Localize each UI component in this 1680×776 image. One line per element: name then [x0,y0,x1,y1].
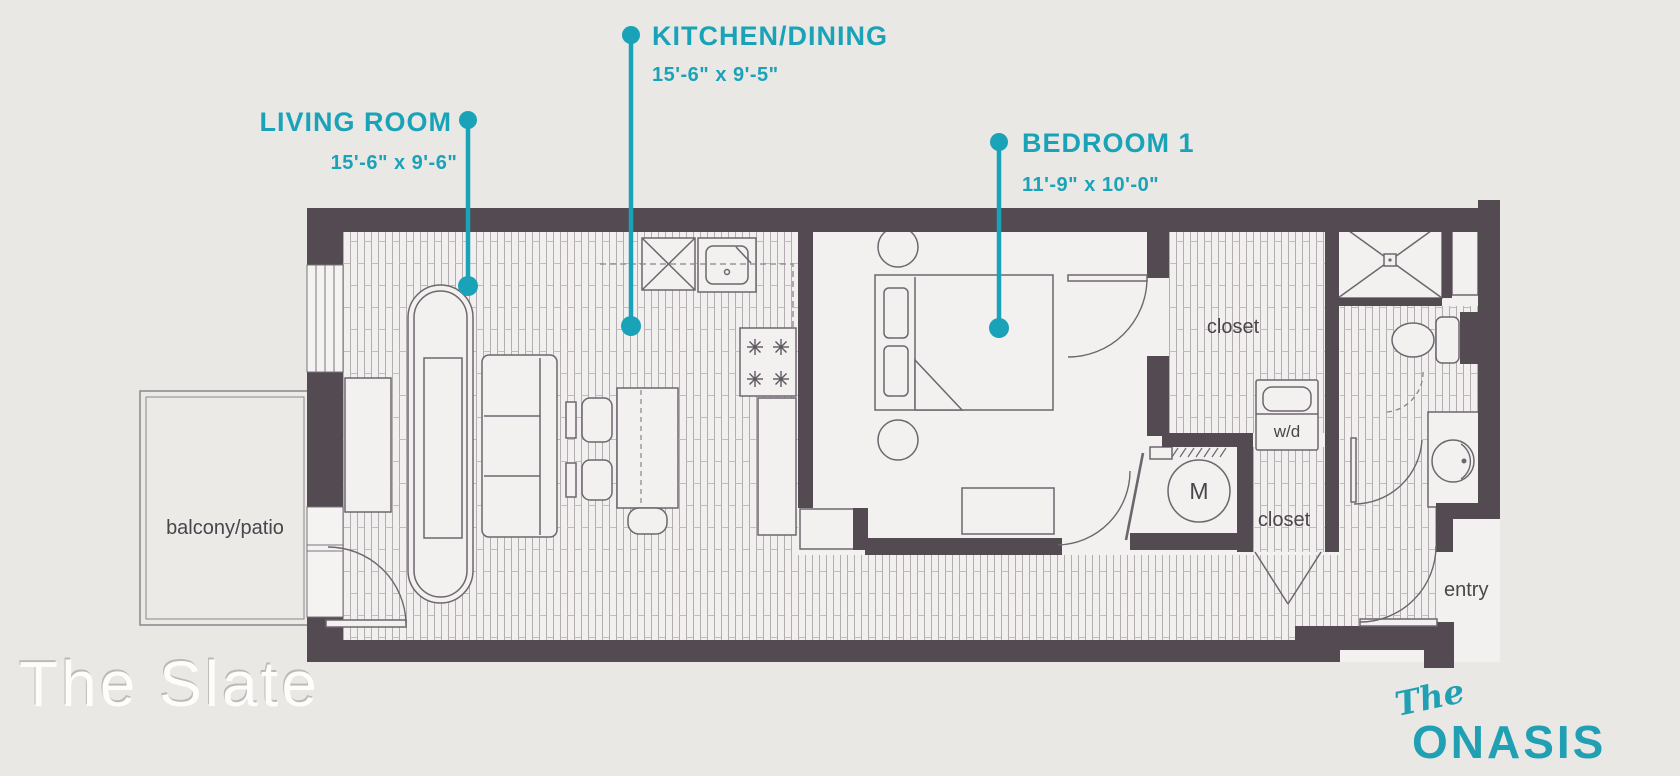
dresser [800,509,854,549]
kitchen-label-dot [622,26,640,44]
nightstand [878,420,918,460]
living-room-dims: 15'-6" x 9'-6" [331,152,458,174]
dining-chair [582,398,612,442]
kitchen-counter [758,398,796,535]
bench [962,488,1054,534]
nightstand [878,227,918,267]
stove [740,328,796,396]
living-room-anchor-dot [458,276,478,296]
dining-chair-back [566,463,576,497]
bedroom-1-dims: 11'-9" x 10'-0" [1022,174,1159,196]
bedroom-1-label: BEDROOM 1 [1022,128,1195,158]
dining-chair [582,460,612,500]
balcony-patio-label: balcony/patio [166,517,284,539]
shower-drain [1388,258,1391,261]
balcony-door-leaf [326,620,406,627]
closet-lower-label: closet [1258,509,1311,531]
sink-drain [1462,459,1467,464]
living-room-label: LIVING ROOM [260,107,453,137]
balcony-door-frame [307,507,343,617]
mechanical-vent [1150,447,1172,459]
unit-name: The Slate [19,648,320,720]
floor-plan-canvas: LIVING ROOM 15'-6" x 9'-6" KITCHEN/DININ… [0,0,1680,776]
bathroom-door-leaf [1351,438,1356,502]
mechanical-room-floor [1130,447,1237,533]
balcony-patio [140,391,310,625]
floor-plan-page: LIVING ROOM 15'-6" x 9'-6" KITCHEN/DININ… [0,0,1680,776]
mechanical-label: M [1189,478,1208,504]
linen-closet-box [1452,225,1478,295]
media-console [345,378,391,512]
entry-door-leaf [1360,619,1437,626]
washer-dryer-label: w/d [1273,422,1300,441]
dining-chair-back [566,402,576,438]
kitchen-anchor-dot [621,316,641,336]
pillow [884,288,908,338]
toilet-tank [1436,317,1459,363]
logo-name: ONASIS [1412,716,1606,768]
coffee-table [424,358,462,538]
toilet-bowl [1392,323,1434,357]
kitchen-island [617,388,678,508]
entry-label: entry [1444,579,1488,601]
closet-upper-label: closet [1207,316,1260,338]
island-stool [628,508,667,534]
sofa [482,355,557,537]
kitchen-dining-label: KITCHEN/DINING [652,21,888,51]
pillow [884,346,908,396]
bedroom-door-leaf [1068,275,1147,281]
bedroom-anchor-dot [989,318,1009,338]
kitchen-dining-dims: 15'-6" x 9'-5" [652,64,779,86]
